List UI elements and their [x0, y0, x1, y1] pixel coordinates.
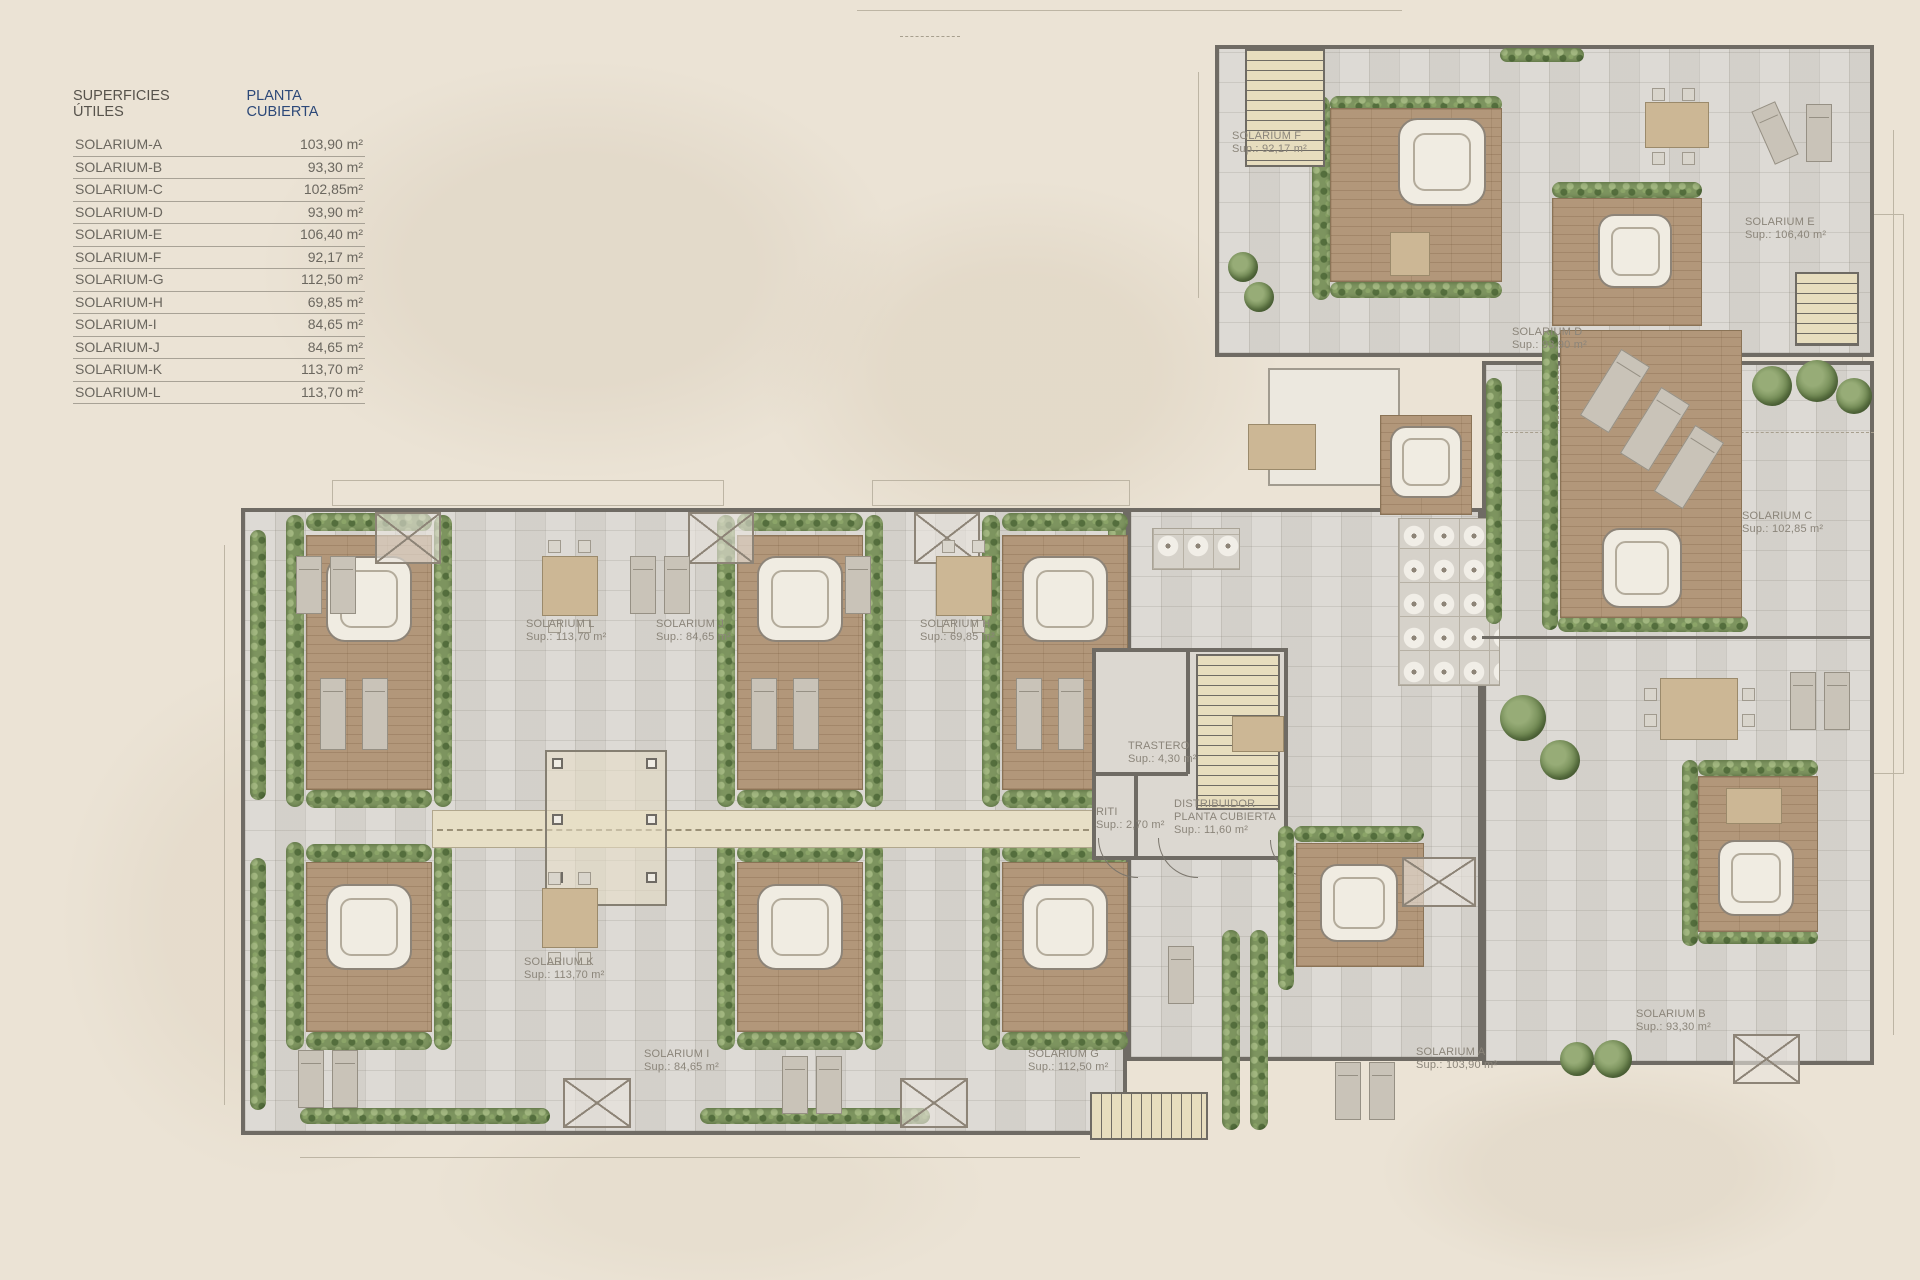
plan-label-solarium-b: SOLARIUM BSup.: 93,30 m² — [1636, 1008, 1711, 1034]
legend-row-solarium-i: SOLARIUM-I84,65 m² — [73, 314, 365, 337]
plan-label-solarium-a: SOLARIUM ASup.: 103,90 m² — [1416, 1046, 1497, 1072]
hedge-strip — [717, 842, 735, 1050]
roof-hatch — [688, 512, 754, 564]
sun-lounger — [845, 556, 871, 614]
dining-table — [542, 556, 598, 616]
plan-label-solarium-g: SOLARIUM GSup.: 112,50 m² — [1028, 1048, 1108, 1074]
dining-table — [1645, 102, 1709, 148]
hedge-strip — [1698, 760, 1818, 776]
sun-lounger — [362, 678, 388, 750]
roof-hatch — [375, 512, 441, 564]
hedge-strip — [306, 790, 432, 808]
legend-row-solarium-c: SOLARIUM-C102,85m² — [73, 179, 365, 202]
dining-table — [936, 556, 992, 616]
dining-table — [1660, 678, 1738, 740]
sun-lounger — [793, 678, 819, 750]
hedge-strip — [1486, 378, 1502, 624]
roof-hatch — [1402, 857, 1476, 907]
jacuzzi — [1718, 840, 1794, 916]
chair — [1742, 714, 1755, 727]
staircase — [1090, 1092, 1208, 1140]
site-boundary-line — [300, 1157, 1080, 1158]
sun-lounger — [1806, 104, 1832, 162]
tree-planter — [1796, 360, 1838, 402]
sun-lounger — [298, 1050, 324, 1108]
sun-lounger — [751, 678, 777, 750]
site-boundary-line — [1198, 72, 1199, 298]
jacuzzi — [1390, 426, 1462, 498]
hedge-strip — [1542, 330, 1558, 630]
legend-row-solarium-f: SOLARIUM-F92,17 m² — [73, 247, 365, 270]
hedge-strip — [1250, 930, 1268, 1130]
sun-lounger — [1369, 1062, 1395, 1120]
hedge-strip — [1330, 282, 1502, 298]
jacuzzi — [1320, 864, 1398, 942]
chair — [1742, 688, 1755, 701]
dining-table — [542, 888, 598, 948]
tree-planter — [1500, 695, 1546, 741]
sun-lounger — [330, 556, 356, 614]
legend-row-solarium-e: SOLARIUM-E106,40 m² — [73, 224, 365, 247]
plan-label-solarium-l: SOLARIUM LSup.: 113,70 m² — [526, 618, 606, 644]
legend-row-solarium-b: SOLARIUM-B93,30 m² — [73, 157, 365, 180]
legend-header: SUPERFICIES ÚTILES PLANTA CUBIERTA — [73, 88, 365, 120]
dining-table — [1232, 716, 1284, 752]
pergola-post — [552, 814, 563, 825]
chair — [1644, 688, 1657, 701]
hedge-strip — [1222, 930, 1240, 1130]
hedge-strip — [1698, 930, 1818, 944]
jacuzzi — [326, 884, 412, 970]
jacuzzi — [757, 884, 843, 970]
roof-hatch — [563, 1078, 631, 1128]
background-texture — [1380, 1060, 1840, 1280]
hedge-strip — [1558, 616, 1748, 632]
hedge-strip — [737, 790, 863, 808]
legend-row-solarium-j: SOLARIUM-J84,65 m² — [73, 337, 365, 360]
sun-lounger — [1335, 1062, 1361, 1120]
sun-lounger — [1016, 678, 1042, 750]
jacuzzi — [757, 556, 843, 642]
plan-label-solarium-d: SOLARIUM DSup.: 93,90 m² — [1512, 326, 1587, 352]
site-boundary-dash — [900, 36, 960, 37]
hedge-strip — [250, 858, 266, 1110]
areas-legend: SUPERFICIES ÚTILES PLANTA CUBIERTA SOLAR… — [73, 88, 365, 404]
sun-lounger — [296, 556, 322, 614]
plan-label-solarium-f: SOLARIUM FSup.: 92,17 m² — [1232, 130, 1307, 156]
staircase — [1795, 272, 1859, 346]
hedge-strip — [306, 1032, 432, 1050]
plan-label-solarium-e: SOLARIUM ESup.: 106,40 m² — [1745, 216, 1826, 242]
sun-lounger — [1790, 672, 1816, 730]
hedge-strip — [1500, 48, 1584, 62]
sun-lounger — [320, 678, 346, 750]
tree-planter — [1228, 252, 1258, 282]
chair — [1652, 88, 1665, 101]
plan-label-solarium-c: SOLARIUM CSup.: 102,85 m² — [1742, 510, 1823, 536]
hedge-strip — [1002, 513, 1128, 531]
hedge-strip — [737, 1032, 863, 1050]
chair — [578, 540, 591, 553]
chair — [548, 872, 561, 885]
hedge-strip — [865, 842, 883, 1050]
legend-row-solarium-h: SOLARIUM-H69,85 m² — [73, 292, 365, 315]
balcony-outline — [332, 480, 724, 506]
legend-subtitle: PLANTA CUBIERTA — [247, 88, 366, 120]
hedge-strip — [1278, 826, 1294, 990]
legend-row-solarium-a: SOLARIUM-A103,90 m² — [73, 134, 365, 157]
tree-planter — [1752, 366, 1792, 406]
hedge-strip — [434, 842, 452, 1050]
legend-row-solarium-k: SOLARIUM-K113,70 m² — [73, 359, 365, 382]
plan-label-solarium-i: SOLARIUM ISup.: 84,65 m² — [644, 1048, 719, 1074]
jacuzzi — [1022, 884, 1108, 970]
chair — [1644, 714, 1657, 727]
plan-label-solarium-j: SOLARIUM JSup.: 84,65 m² — [656, 618, 731, 644]
side-table — [1726, 788, 1782, 824]
pergola-post — [552, 758, 563, 769]
hedge-strip — [286, 842, 304, 1050]
chair — [972, 540, 985, 553]
plan-label-solarium-h: SOLARIUM HSup.: 69,85 m² — [920, 618, 995, 644]
pergola-post — [646, 758, 657, 769]
dining-table — [1248, 424, 1316, 470]
tree-planter — [1244, 282, 1274, 312]
hedge-strip — [306, 844, 432, 862]
pergola-post — [646, 872, 657, 883]
sun-lounger — [1168, 946, 1194, 1004]
jacuzzi — [1022, 556, 1108, 642]
sun-lounger — [1824, 672, 1850, 730]
hedge-strip — [982, 842, 1000, 1050]
sun-lounger — [332, 1050, 358, 1108]
sun-lounger — [1058, 678, 1084, 750]
jacuzzi — [1598, 214, 1672, 288]
sun-lounger — [630, 556, 656, 614]
hedge-strip — [1294, 826, 1424, 842]
plan-label-trastero: TRASTEROSup.: 4,30 m² — [1128, 740, 1197, 766]
partition-wall — [1482, 636, 1874, 639]
plan-label-riti: RITISup.: 2,70 m² — [1096, 806, 1165, 832]
hedge-strip — [737, 513, 863, 531]
roof-hatch — [1733, 1034, 1800, 1084]
central-walkway — [432, 810, 1094, 848]
tree-planter — [1836, 378, 1872, 414]
legend-title: SUPERFICIES ÚTILES — [73, 88, 211, 120]
hedge-strip — [1682, 760, 1698, 946]
chair — [1682, 88, 1695, 101]
sun-lounger — [782, 1056, 808, 1114]
outdoor-kitchen-grid — [1398, 518, 1500, 686]
site-boundary-line — [857, 10, 1402, 11]
sun-lounger — [816, 1056, 842, 1114]
jacuzzi — [1602, 528, 1682, 608]
tree-planter — [1560, 1042, 1594, 1076]
side-table — [1390, 232, 1430, 276]
balcony-outline — [872, 480, 1130, 506]
hedge-strip — [250, 530, 266, 800]
site-boundary-line — [224, 545, 225, 1105]
chair — [942, 540, 955, 553]
legend-row-solarium-g: SOLARIUM-G112,50 m² — [73, 269, 365, 292]
plan-label-solarium-k: SOLARIUM KSup.: 113,70 m² — [524, 956, 604, 982]
roof-hatch — [900, 1078, 968, 1128]
core-wall — [1096, 772, 1188, 776]
tree-planter — [1594, 1040, 1632, 1078]
legend-row-solarium-d: SOLARIUM-D93,90 m² — [73, 202, 365, 225]
hedge-strip — [700, 1108, 930, 1124]
hedge-strip — [300, 1108, 550, 1124]
sun-lounger — [664, 556, 690, 614]
tree-planter — [1540, 740, 1580, 780]
roof-floor-plan-drawing: SOLARIUM FSup.: 92,17 m² SOLARIUM ESup.:… — [0, 0, 1920, 1280]
chair — [578, 872, 591, 885]
outdoor-kitchen-grid — [1152, 528, 1240, 570]
pergola-post — [646, 814, 657, 825]
chair — [1652, 152, 1665, 165]
jacuzzi — [1398, 118, 1486, 206]
hedge-strip — [1552, 182, 1702, 198]
chair — [548, 540, 561, 553]
plan-label-distribuidor: DISTRIBUIDORPLANTA CUBIERTASup.: 11,60 m… — [1174, 798, 1276, 837]
legend-row-solarium-l: SOLARIUM-L113,70 m² — [73, 382, 365, 405]
chair — [1682, 152, 1695, 165]
leader-line — [1558, 366, 1559, 424]
